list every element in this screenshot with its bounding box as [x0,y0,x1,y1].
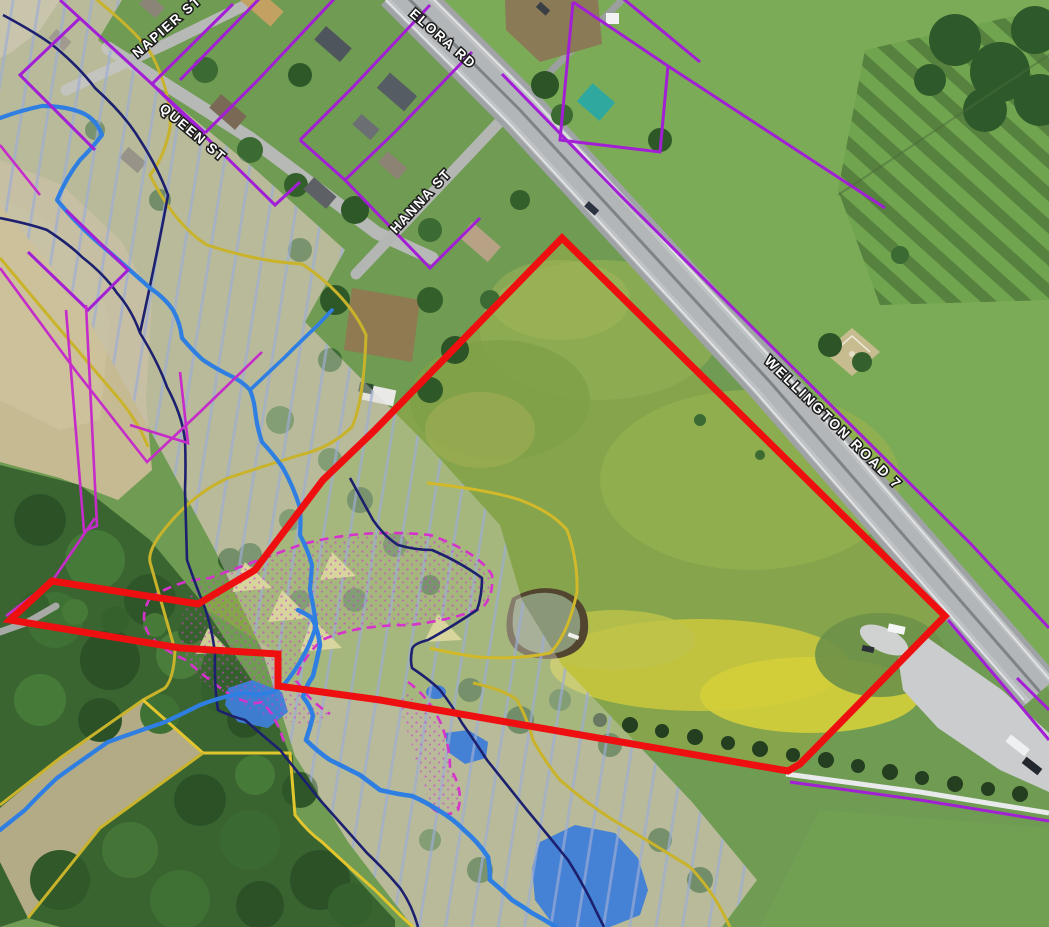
aerial-map-canvas: NAPIER ST QUEEN ST ELORA RD HANNA ST WEL… [0,0,1049,927]
garden-plot [344,288,420,362]
map-viewport[interactable]: NAPIER ST QUEEN ST ELORA RD HANNA ST WEL… [0,0,1049,927]
